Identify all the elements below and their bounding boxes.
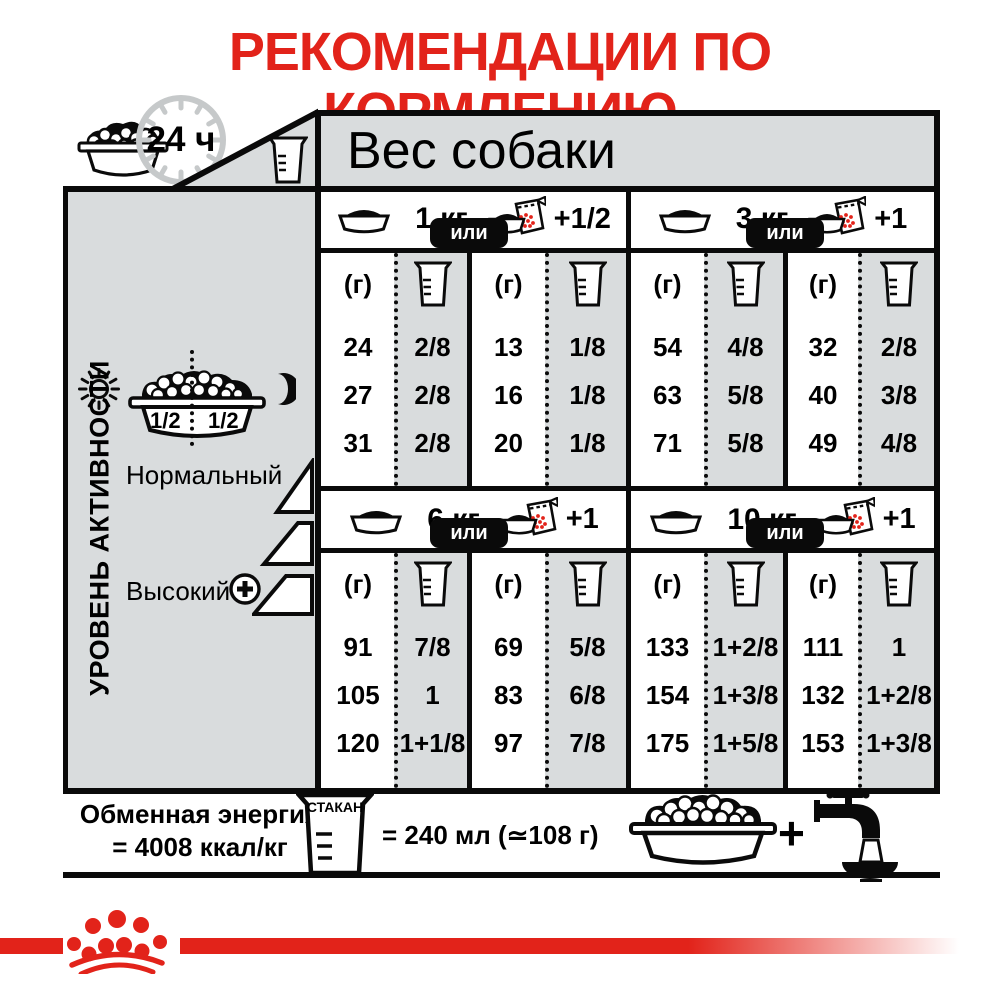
grams-value: 97 <box>494 719 523 767</box>
border-line <box>63 788 940 794</box>
cup-header <box>569 553 607 615</box>
glass-cup: СТАКАН <box>296 792 374 876</box>
cups-value: 7/8 <box>569 719 605 767</box>
plus-sign: + <box>778 806 805 860</box>
cups-column: 1+2/8 1+3/8 1+5/8 <box>704 553 783 788</box>
grams-value: 132 <box>801 671 844 719</box>
grams-value: 54 <box>653 323 682 371</box>
grams-header: (г) <box>494 553 522 615</box>
grams-column: (г) 13 16 20 <box>467 253 545 486</box>
grams-value: 13 <box>494 323 523 371</box>
or-badge: или <box>746 518 824 548</box>
grams-value: 27 <box>344 371 373 419</box>
dog-weight-header: Вес собаки <box>321 116 934 186</box>
measuring-cup-icon <box>268 136 308 184</box>
grams-value: 154 <box>646 671 689 719</box>
border-line <box>63 186 940 192</box>
cup-header <box>414 553 452 615</box>
grams-value: 175 <box>646 719 689 767</box>
cups-value: 2/8 <box>881 323 917 371</box>
cups-value: 1+3/8 <box>713 671 779 719</box>
border-line <box>63 872 940 878</box>
pouch-bowl-icon <box>817 497 875 543</box>
cups-value: 7/8 <box>414 623 450 671</box>
grams-value: 105 <box>336 671 379 719</box>
cups-column: 2/8 3/8 4/8 <box>858 253 936 486</box>
grams-column: (г) 111 132 153 <box>783 553 858 788</box>
bowl-icon <box>337 204 391 234</box>
grams-value: 69 <box>494 623 523 671</box>
cups-value: 1/8 <box>569 419 605 467</box>
grams-value: 24 <box>344 323 373 371</box>
cups-value: 1/8 <box>569 371 605 419</box>
grams-value: 16 <box>494 371 523 419</box>
or-badge: или <box>430 518 508 548</box>
dog-weight-title: Вес собаки <box>321 116 934 186</box>
cups-value: 2/8 <box>414 371 450 419</box>
cups-value: 1+5/8 <box>713 719 779 767</box>
cups-value: 2/8 <box>414 419 450 467</box>
cups-value: 1 <box>892 623 906 671</box>
grams-value: 91 <box>344 623 373 671</box>
activity-ramp-icon <box>252 458 314 618</box>
cups-value: 1/8 <box>569 323 605 371</box>
measuring-cup-icon <box>569 561 607 607</box>
cups-value: 3/8 <box>881 371 917 419</box>
cups-value: 6/8 <box>569 671 605 719</box>
measuring-cup-icon <box>880 261 918 307</box>
cup-header <box>569 253 607 315</box>
feeding-guide-page: РЕКОМЕНДАЦИИ ПО КОРМЛЕНИЮ <box>0 0 1000 1000</box>
food-bowl-icon <box>627 790 779 874</box>
page-title: РЕКОМЕНДАЦИИ ПО КОРМЛЕНИЮ <box>55 22 945 84</box>
cup-header <box>414 253 452 315</box>
cups-column: 5/8 6/8 7/8 <box>545 553 626 788</box>
cups-column: 1/8 1/8 1/8 <box>545 253 626 486</box>
grams-header: (г) <box>809 553 837 615</box>
border-line <box>63 186 68 794</box>
half-right-label: 1/2 <box>208 408 239 434</box>
cups-value: 2/8 <box>414 323 450 371</box>
cups-column: 2/8 2/8 2/8 <box>394 253 467 486</box>
grams-header: (г) <box>653 253 681 315</box>
glass-label: СТАКАН <box>296 799 374 815</box>
brand-stripe <box>0 938 63 954</box>
extra-label: +1 <box>566 503 599 536</box>
measuring-cup-icon <box>569 261 607 307</box>
half-bowl-icon <box>128 368 266 448</box>
or-badge: или <box>430 218 508 248</box>
grams-value: 40 <box>809 371 838 419</box>
grams-column: (г) 24 27 31 <box>322 253 394 486</box>
measuring-cup-icon <box>727 561 765 607</box>
cups-column: 1 1+2/8 1+3/8 <box>858 553 936 788</box>
cups-value: 1+1/8 <box>400 719 466 767</box>
cups-value: 5/8 <box>727 371 763 419</box>
cups-value: 5/8 <box>727 419 763 467</box>
grams-column: (г) 91 105 120 <box>322 553 394 788</box>
border-line <box>934 110 940 794</box>
grams-value: 120 <box>336 719 379 767</box>
grams-column: (г) 69 83 97 <box>467 553 545 788</box>
bowl-icon <box>649 505 703 535</box>
grams-value: 49 <box>809 419 838 467</box>
brand-stripe <box>180 938 1000 954</box>
grams-value: 63 <box>653 371 682 419</box>
energy-label: Обменная энергия = 4008 ккал/кг <box>76 798 324 864</box>
measuring-cup-icon <box>727 261 765 307</box>
extra-label: +1 <box>883 503 916 536</box>
grams-column: (г) 32 40 49 <box>783 253 858 486</box>
crown-logo <box>62 908 172 974</box>
cup-header <box>727 553 765 615</box>
bowl-icon <box>349 505 403 535</box>
half-left-label: 1/2 <box>150 408 181 434</box>
border-line <box>315 110 940 116</box>
energy-line1: Обменная энергия <box>76 798 324 831</box>
cups-value: 1 <box>425 671 439 719</box>
extra-label: +1 <box>874 203 907 236</box>
cup-header <box>727 253 765 315</box>
grams-header: (г) <box>344 553 372 615</box>
cups-column: 7/8 1 1+1/8 <box>394 553 467 788</box>
grams-value: 153 <box>801 719 844 767</box>
bowl-split-line <box>190 350 194 446</box>
cups-value: 4/8 <box>881 419 917 467</box>
extra-label: +1/2 <box>554 203 611 236</box>
high-activity-label: Высокий <box>126 576 230 607</box>
or-badge: или <box>746 218 824 248</box>
energy-line2: = 4008 ккал/кг <box>76 831 324 864</box>
cup-header <box>880 253 918 315</box>
pouch-bowl-icon <box>500 497 558 543</box>
measuring-cup-icon <box>414 561 452 607</box>
cups-value: 1+2/8 <box>866 671 932 719</box>
grams-header: (г) <box>494 253 522 315</box>
grams-column: (г) 54 63 71 <box>631 253 704 486</box>
grams-value: 20 <box>494 419 523 467</box>
cup-header <box>880 553 918 615</box>
cups-value: 5/8 <box>569 623 605 671</box>
measuring-cup-icon <box>880 561 918 607</box>
grams-header: (г) <box>344 253 372 315</box>
grams-value: 32 <box>809 323 838 371</box>
border-line <box>315 110 321 794</box>
grams-value: 133 <box>646 623 689 671</box>
grams-value: 71 <box>653 419 682 467</box>
cups-value: 4/8 <box>727 323 763 371</box>
water-tap-icon <box>814 786 898 882</box>
cups-value: 1+3/8 <box>866 719 932 767</box>
grams-column: (г) 133 154 175 <box>631 553 704 788</box>
cups-column: 4/8 5/8 5/8 <box>704 253 783 486</box>
grams-header: (г) <box>809 253 837 315</box>
activity-axis-label: УРОВЕНЬ АКТИВНОСТИ <box>85 360 116 696</box>
bowl-icon <box>658 204 712 234</box>
grams-header: (г) <box>653 553 681 615</box>
grams-value: 83 <box>494 671 523 719</box>
border-line <box>626 190 631 788</box>
cups-value: 1+2/8 <box>713 623 779 671</box>
glass-equiv-label: = 240 мл (≃108 г) <box>382 820 599 851</box>
grams-value: 111 <box>803 623 844 671</box>
grams-value: 31 <box>344 419 373 467</box>
measuring-cup-icon <box>414 261 452 307</box>
